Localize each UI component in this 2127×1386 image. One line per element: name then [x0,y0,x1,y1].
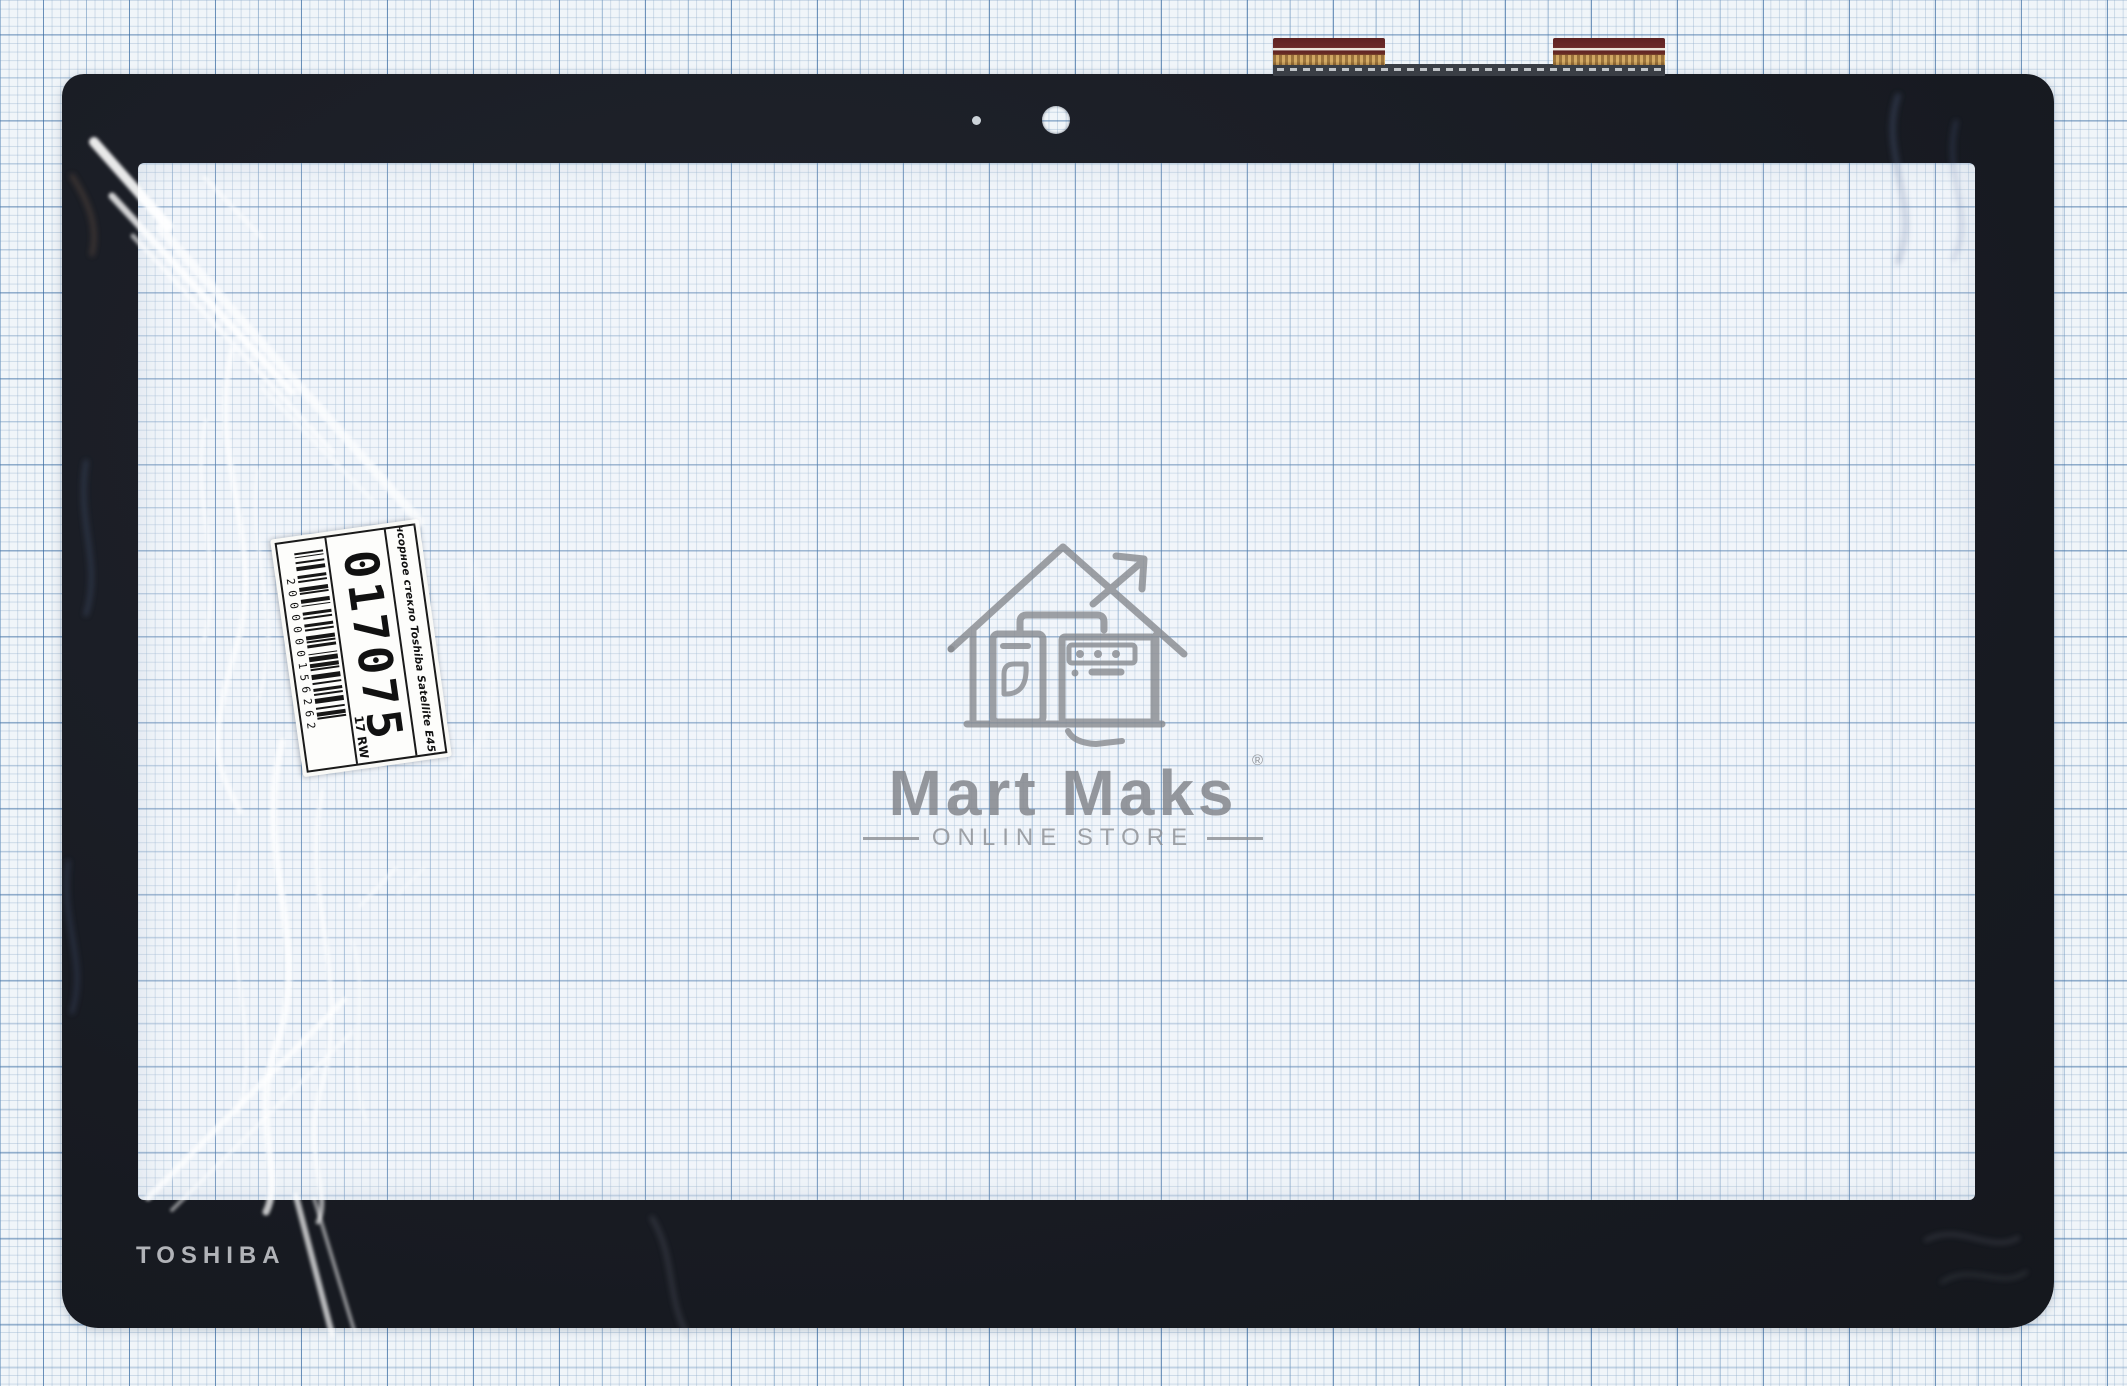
subtitle-dash-right [1207,837,1263,840]
registered-mark: ® [1252,752,1263,769]
ribbon-cable-left [1273,38,1385,65]
subtitle-dash-left [863,837,919,840]
fpc-stiffener-strip [1273,64,1665,76]
watermark-subtitle: ONLINE STORE [932,824,1194,852]
toshiba-logo: TOSHIBA [136,1242,286,1270]
ribbon-cable-right [1553,38,1665,65]
microphone-hole [972,116,981,125]
watermark-brand: Mart Maks [858,756,1268,830]
camera-hole [1042,106,1070,134]
watermark-subtitle-row: ONLINE STORE [858,824,1268,852]
graph-paper-background: TOSHIBA Сенсорное стекло Toshiba Satelli… [0,0,2127,1386]
sticker-frame: Сенсорное стекло Toshiba Satellite E45T-… [275,523,448,773]
